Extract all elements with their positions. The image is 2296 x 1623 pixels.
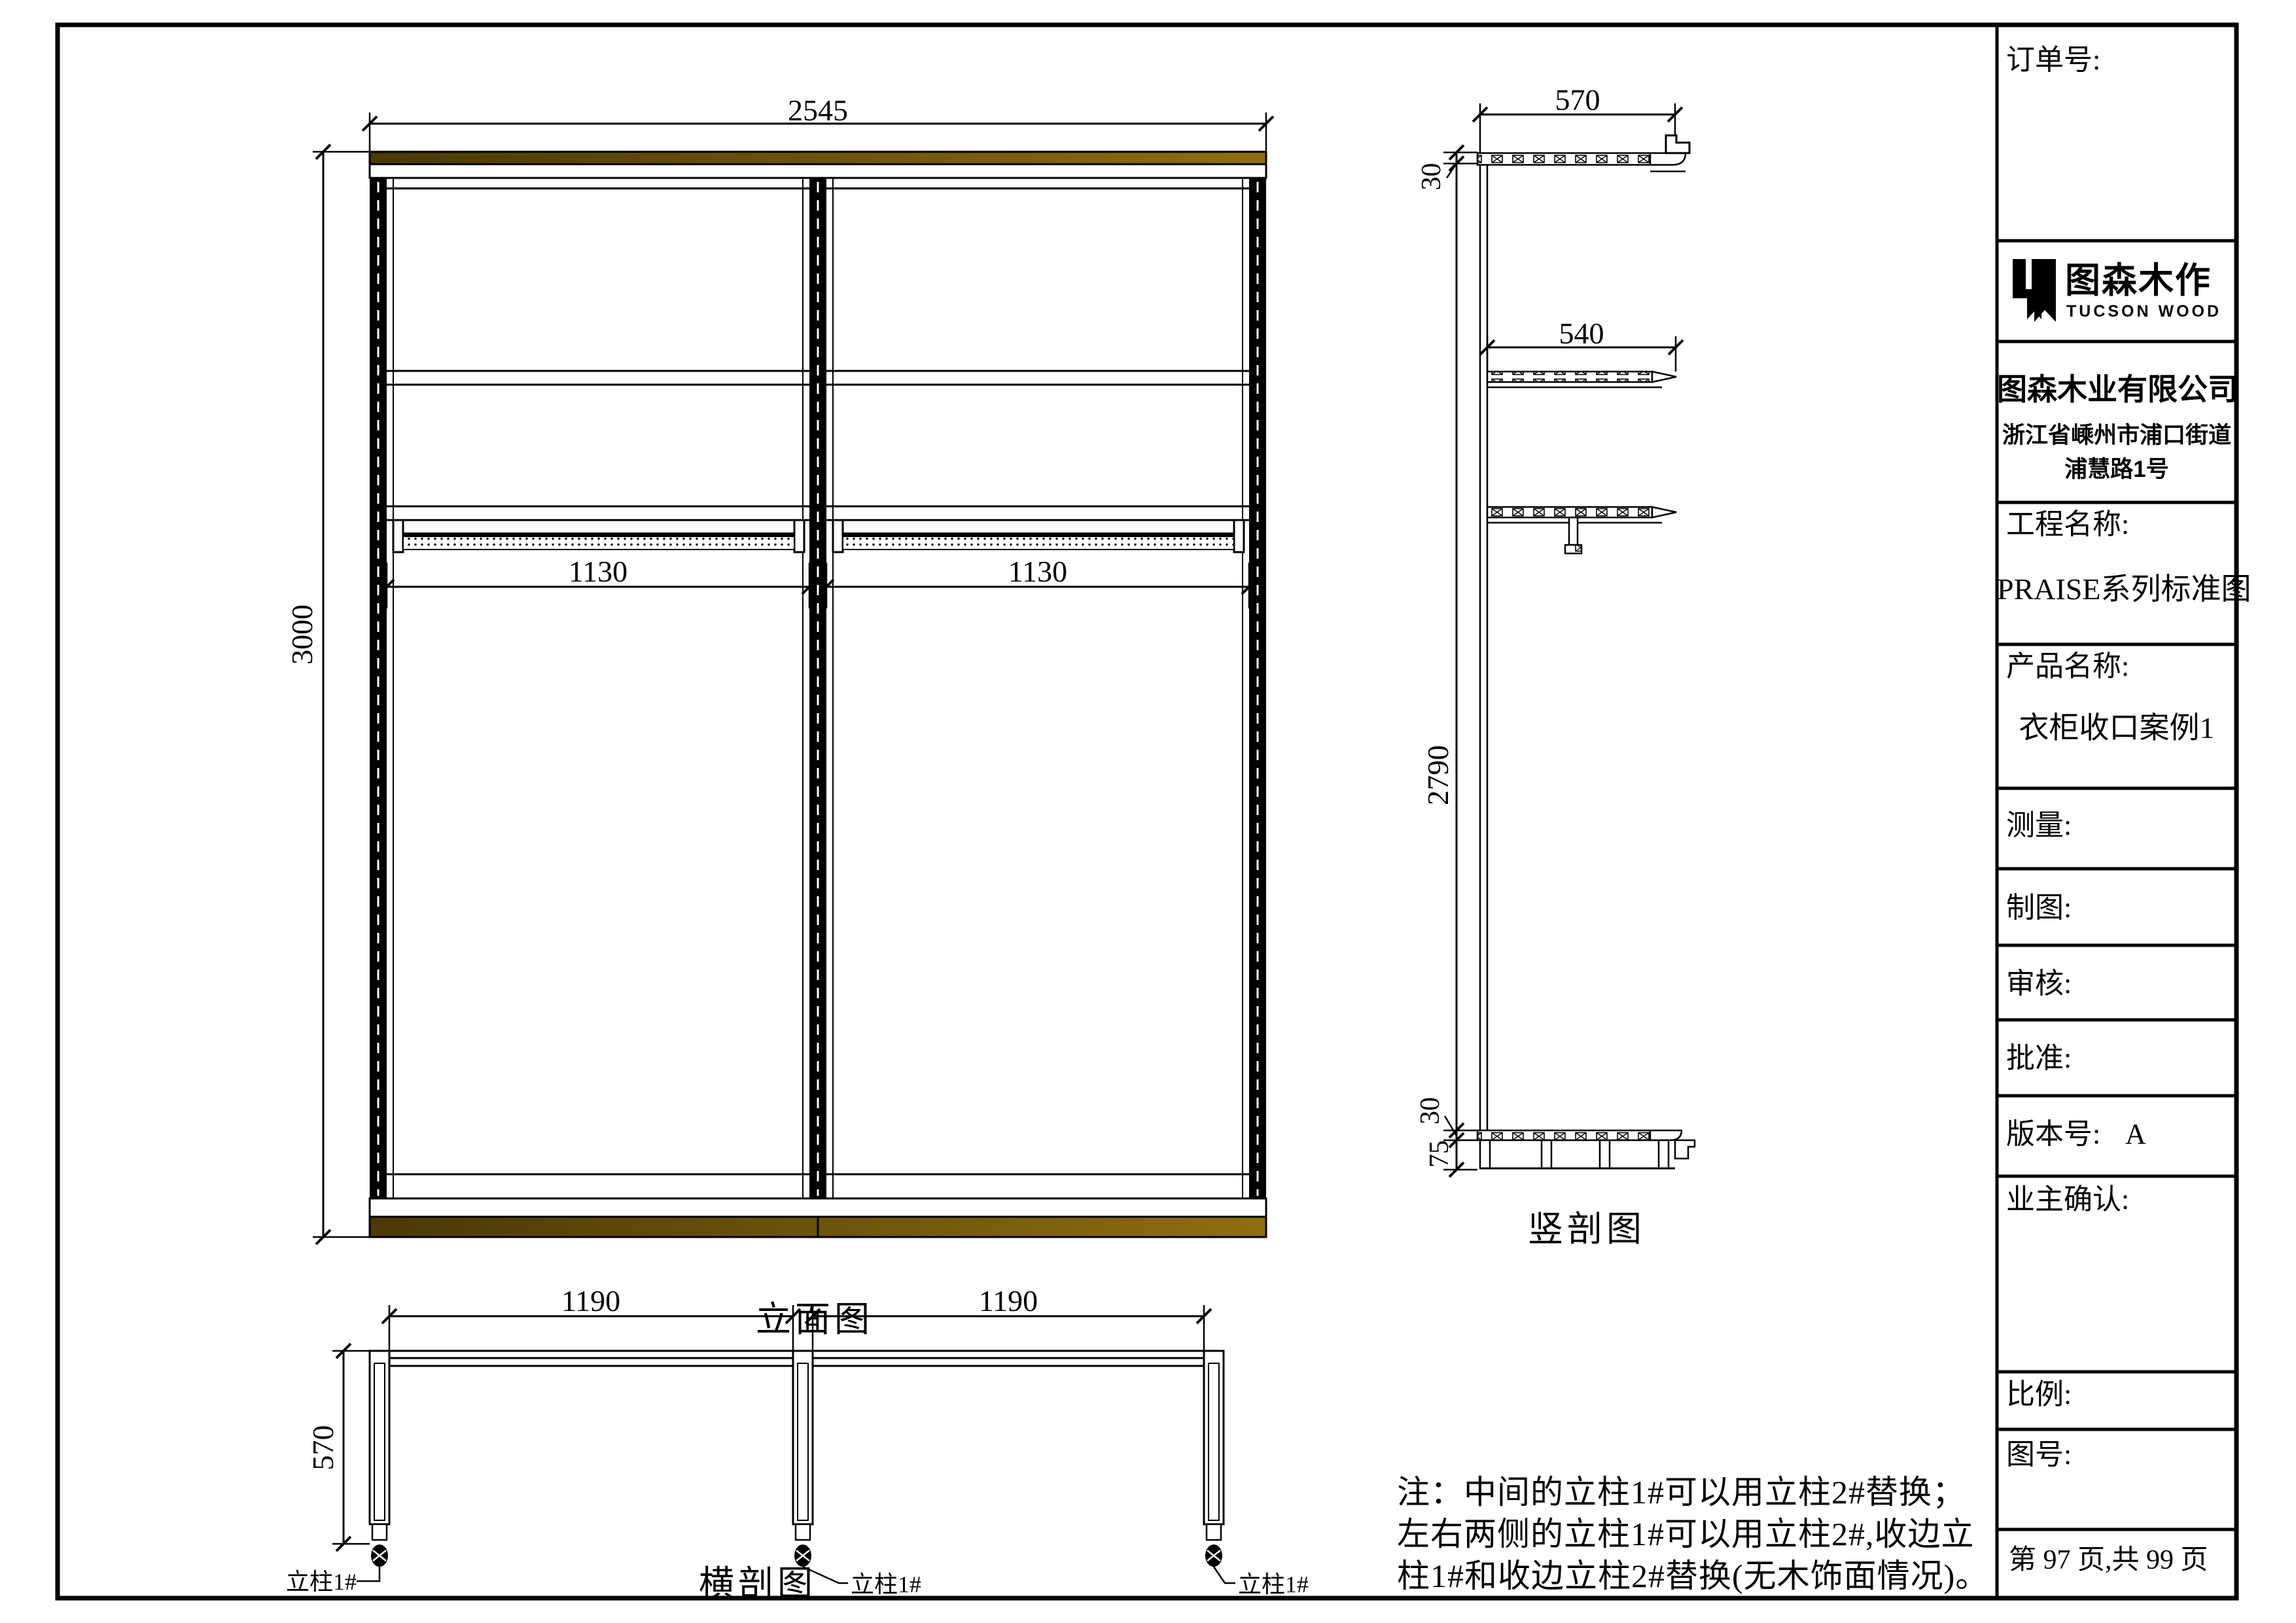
plan-casters [371,1544,1222,1567]
section-top-shelf [1477,135,1689,171]
plan-bay-left-dim-text: 1190 [561,1286,620,1316]
linework-layer [0,0,2296,1623]
measure-label: 测量: [2006,811,2072,840]
column-label-right: 立柱1# [1238,1573,1309,1596]
column-label-left: 立柱1# [286,1570,357,1594]
column-label-center: 立柱1# [851,1573,921,1596]
vertical-section-view-title: 竖剖图 [1528,1212,1646,1247]
product-name-label: 产品名称: [2006,652,2129,681]
project-name-label: 工程名称: [2006,510,2129,539]
version-label: 版本号: [2006,1120,2100,1149]
elevation-height-dim-text: 3000 [287,604,317,665]
plan-depth-dim-text: 570 [308,1425,338,1471]
company-address-1: 浙江省嵊州市浦口街道 [1997,424,2236,447]
section-base-height-dim-text: 75 [1426,1140,1453,1168]
section-mid-shelves [1487,372,1676,553]
vertical-section-view [1443,103,1695,1177]
elevation-dim-height [313,145,370,1244]
project-name-value: PRAISE系列标准图 [1997,574,2236,604]
scale-label: 比例: [2006,1380,2072,1409]
approve-label: 批准: [2006,1044,2072,1073]
logo-cn-text: 图森木作 [2065,263,2212,298]
section-base [1477,1130,1695,1168]
caster-icon [371,1544,388,1567]
order-number-label: 订单号: [2006,46,2100,75]
plan-bay-right-dim-text: 1190 [979,1286,1038,1316]
company-name: 图森木业有限公司 [1997,374,2236,404]
elevation-top-cap [370,152,1266,164]
company-address-2: 浦慧路1号 [1997,458,2236,481]
section-back-panel [1480,165,1487,1130]
drawing-no-label: 图号: [2006,1440,2072,1469]
version-value: A [2125,1120,2146,1149]
drawing-sheet: 2545 3000 1130 1130 立面图 570 540 30 2790 … [0,0,2296,1623]
section-depth-dim-text: 570 [1555,85,1600,115]
elevation-columns [370,178,1266,1198]
logo-en-text: TUCSON WOOD [2066,304,2221,320]
tucson-wood-logo-icon [2013,259,2056,322]
caster-icon [1205,1544,1222,1567]
section-height-dim-text: 2790 [1423,745,1453,805]
plan-columns [370,1351,1224,1540]
note-line-1: 注：中间的立柱1#可以用立柱2#替换； [1397,1476,1966,1509]
horizontal-section-view [332,1305,1235,1583]
elevation-bay-left-dim-text: 1130 [569,557,627,587]
elevation-width-dim-text: 2545 [788,96,848,126]
note-line-3: 柱1#和收边立柱2#替换(无木饰面情况)。 [1397,1560,1988,1592]
section-dim-stack [1443,145,1477,1177]
review-label: 审核: [2006,969,2072,998]
section-bottom-thickness-dim-text: 30 [1417,1097,1444,1125]
caster-icon [794,1544,811,1567]
elevation-view [313,113,1273,1244]
elevation-view-title: 立面图 [756,1302,874,1337]
owner-confirm-label: 业主确认: [2006,1185,2129,1214]
section-top-thickness-dim-text: 30 [1418,163,1445,190]
draft-label: 制图: [2006,894,2072,922]
horizontal-section-view-title: 横剖图 [699,1566,817,1601]
page-info: 第 97 页,共 99 页 [2009,1546,2208,1574]
note-line-2: 左右两侧的立柱1#可以用立柱2#,收边立 [1397,1518,1975,1550]
product-name-value: 衣柜收口案例1 [1997,713,2236,743]
elevation-bay-right-dim-text: 1130 [1008,557,1067,587]
section-shelf-depth-dim-text: 540 [1559,319,1604,349]
